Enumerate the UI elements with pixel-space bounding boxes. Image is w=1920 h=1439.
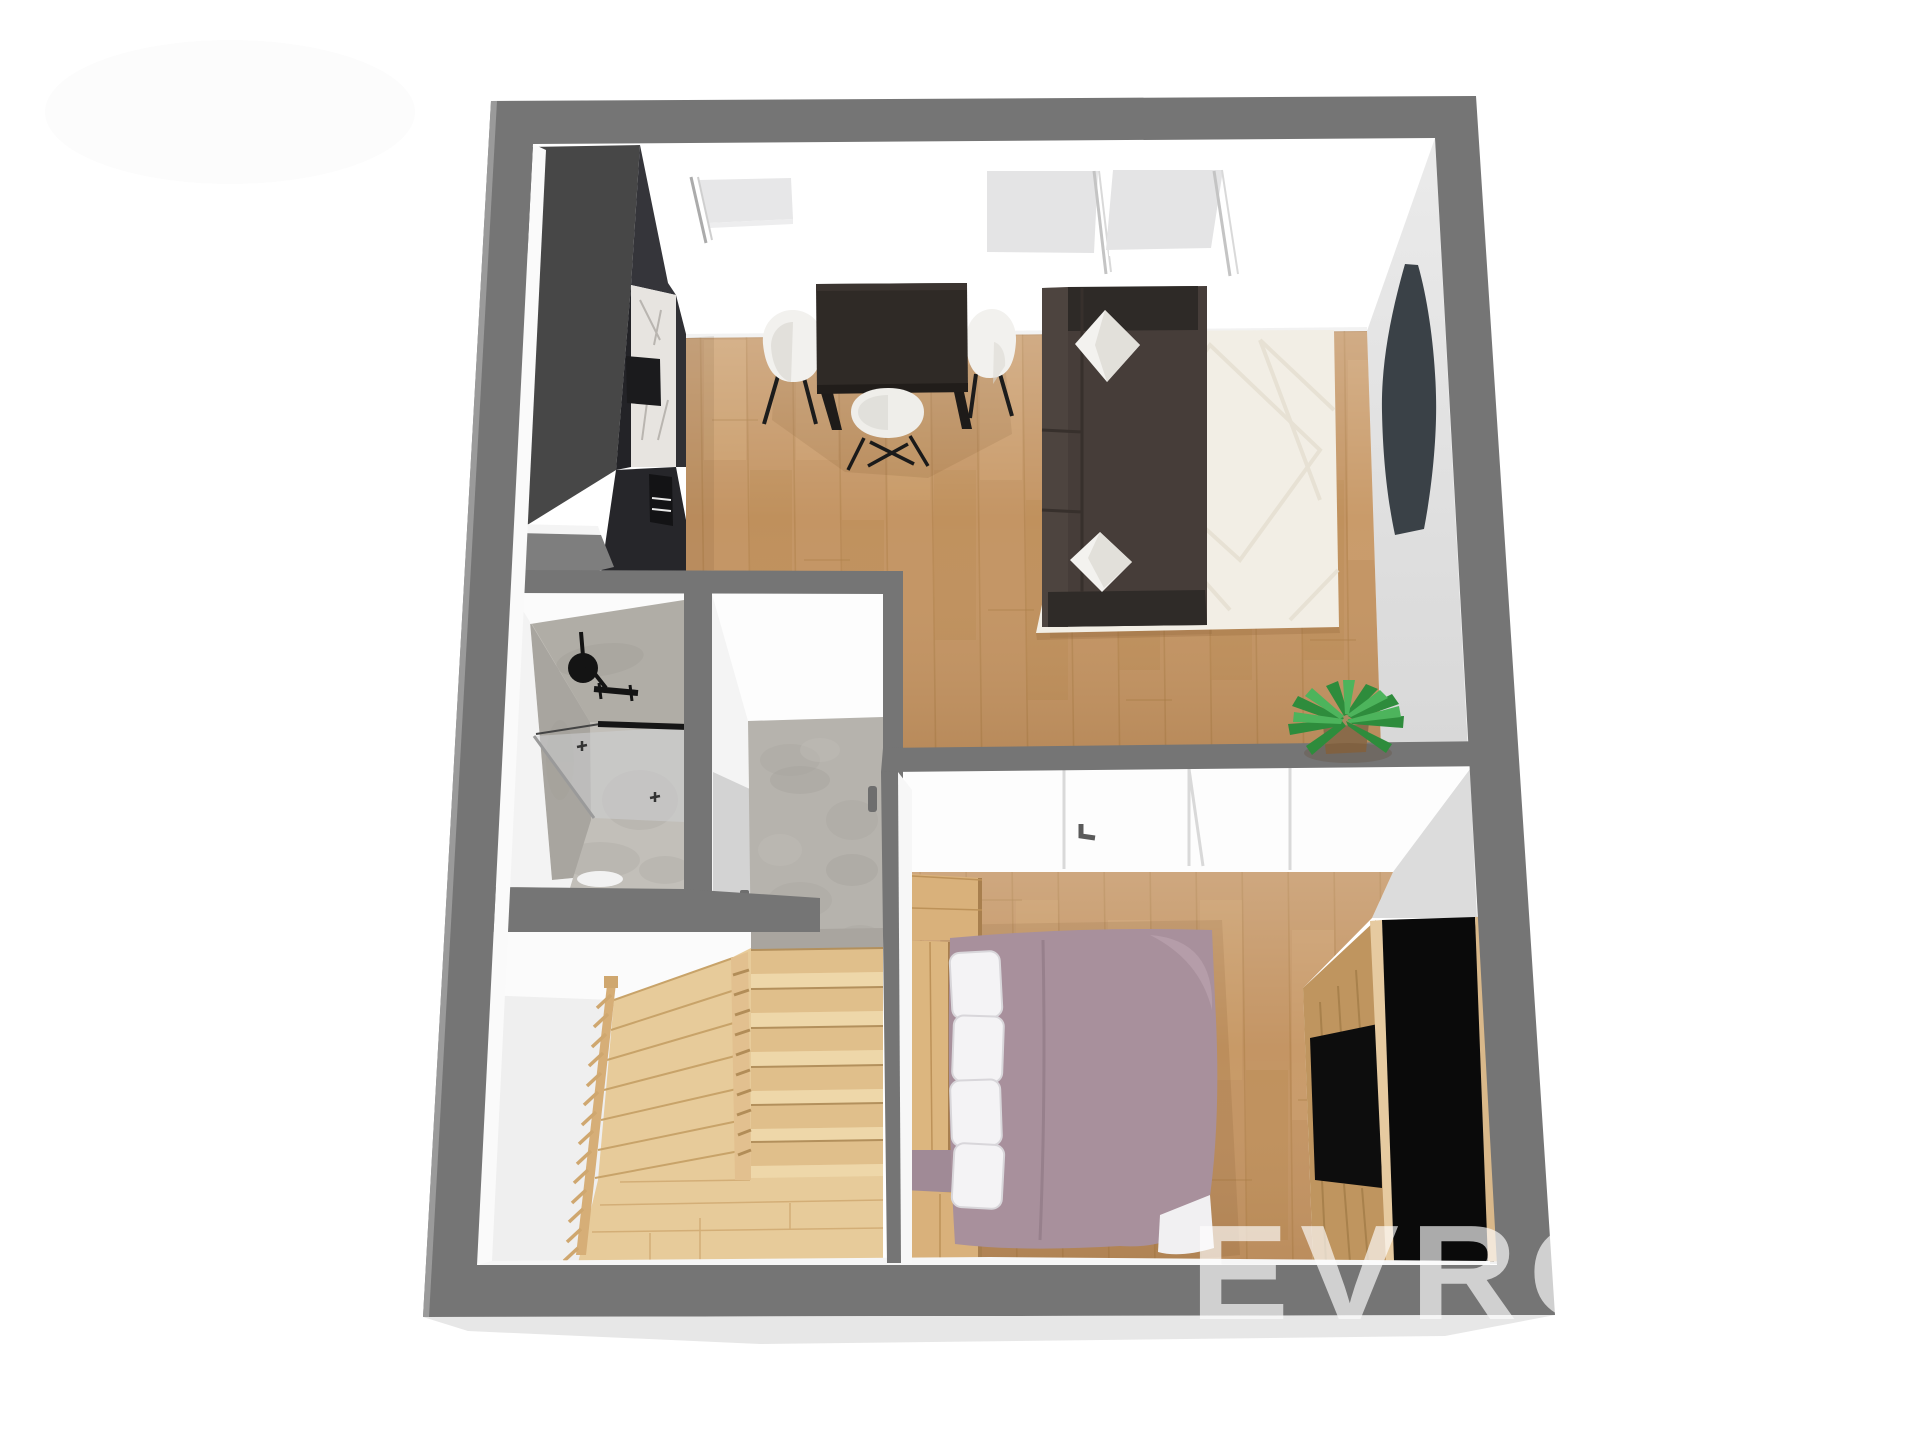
svg-text:EVRO: EVRO (1190, 1198, 1655, 1348)
